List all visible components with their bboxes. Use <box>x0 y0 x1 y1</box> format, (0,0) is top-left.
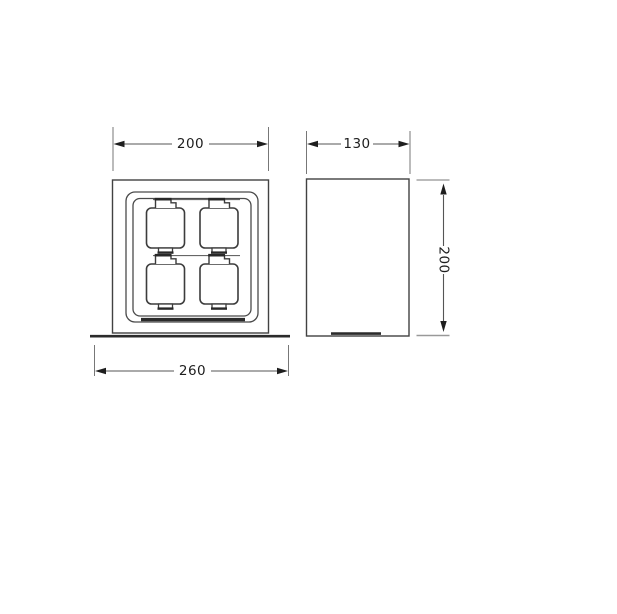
socket-body <box>200 208 238 248</box>
side-view <box>307 179 410 336</box>
dimension-side-height: 200 <box>417 180 452 336</box>
arrow-right-icon <box>277 368 288 374</box>
technical-drawing-page: 200 130 200 <box>0 0 617 614</box>
front-view <box>90 180 290 336</box>
arrow-left-icon <box>307 141 318 147</box>
dimension-side-top-width: 130 <box>307 131 411 174</box>
arrow-right-icon <box>257 141 268 147</box>
socket-body <box>200 264 238 304</box>
dimension-front-top-width: 200 <box>113 127 269 171</box>
dimension-label-side-height: 200 <box>436 246 452 273</box>
arrow-down-icon <box>440 321 446 332</box>
power-socket-module-icon <box>147 199 185 252</box>
socket-body <box>147 208 185 248</box>
arrow-right-icon <box>399 141 410 147</box>
dimension-label-base-width: 260 <box>179 363 206 379</box>
dimension-label-front-width: 200 <box>177 136 204 152</box>
dimension-front-bottom-width: 260 <box>95 345 289 379</box>
power-socket-module-icon <box>147 255 185 308</box>
socket-body <box>147 264 185 304</box>
power-socket-module-icon <box>200 255 238 308</box>
dimension-drawing: 200 130 200 <box>0 0 617 614</box>
arrow-left-icon <box>114 141 125 147</box>
side-view-housing <box>307 179 410 336</box>
power-socket-module-icon <box>200 199 238 252</box>
dimension-label-side-width: 130 <box>343 136 370 152</box>
arrow-left-icon <box>95 368 106 374</box>
arrow-up-icon <box>440 184 446 195</box>
